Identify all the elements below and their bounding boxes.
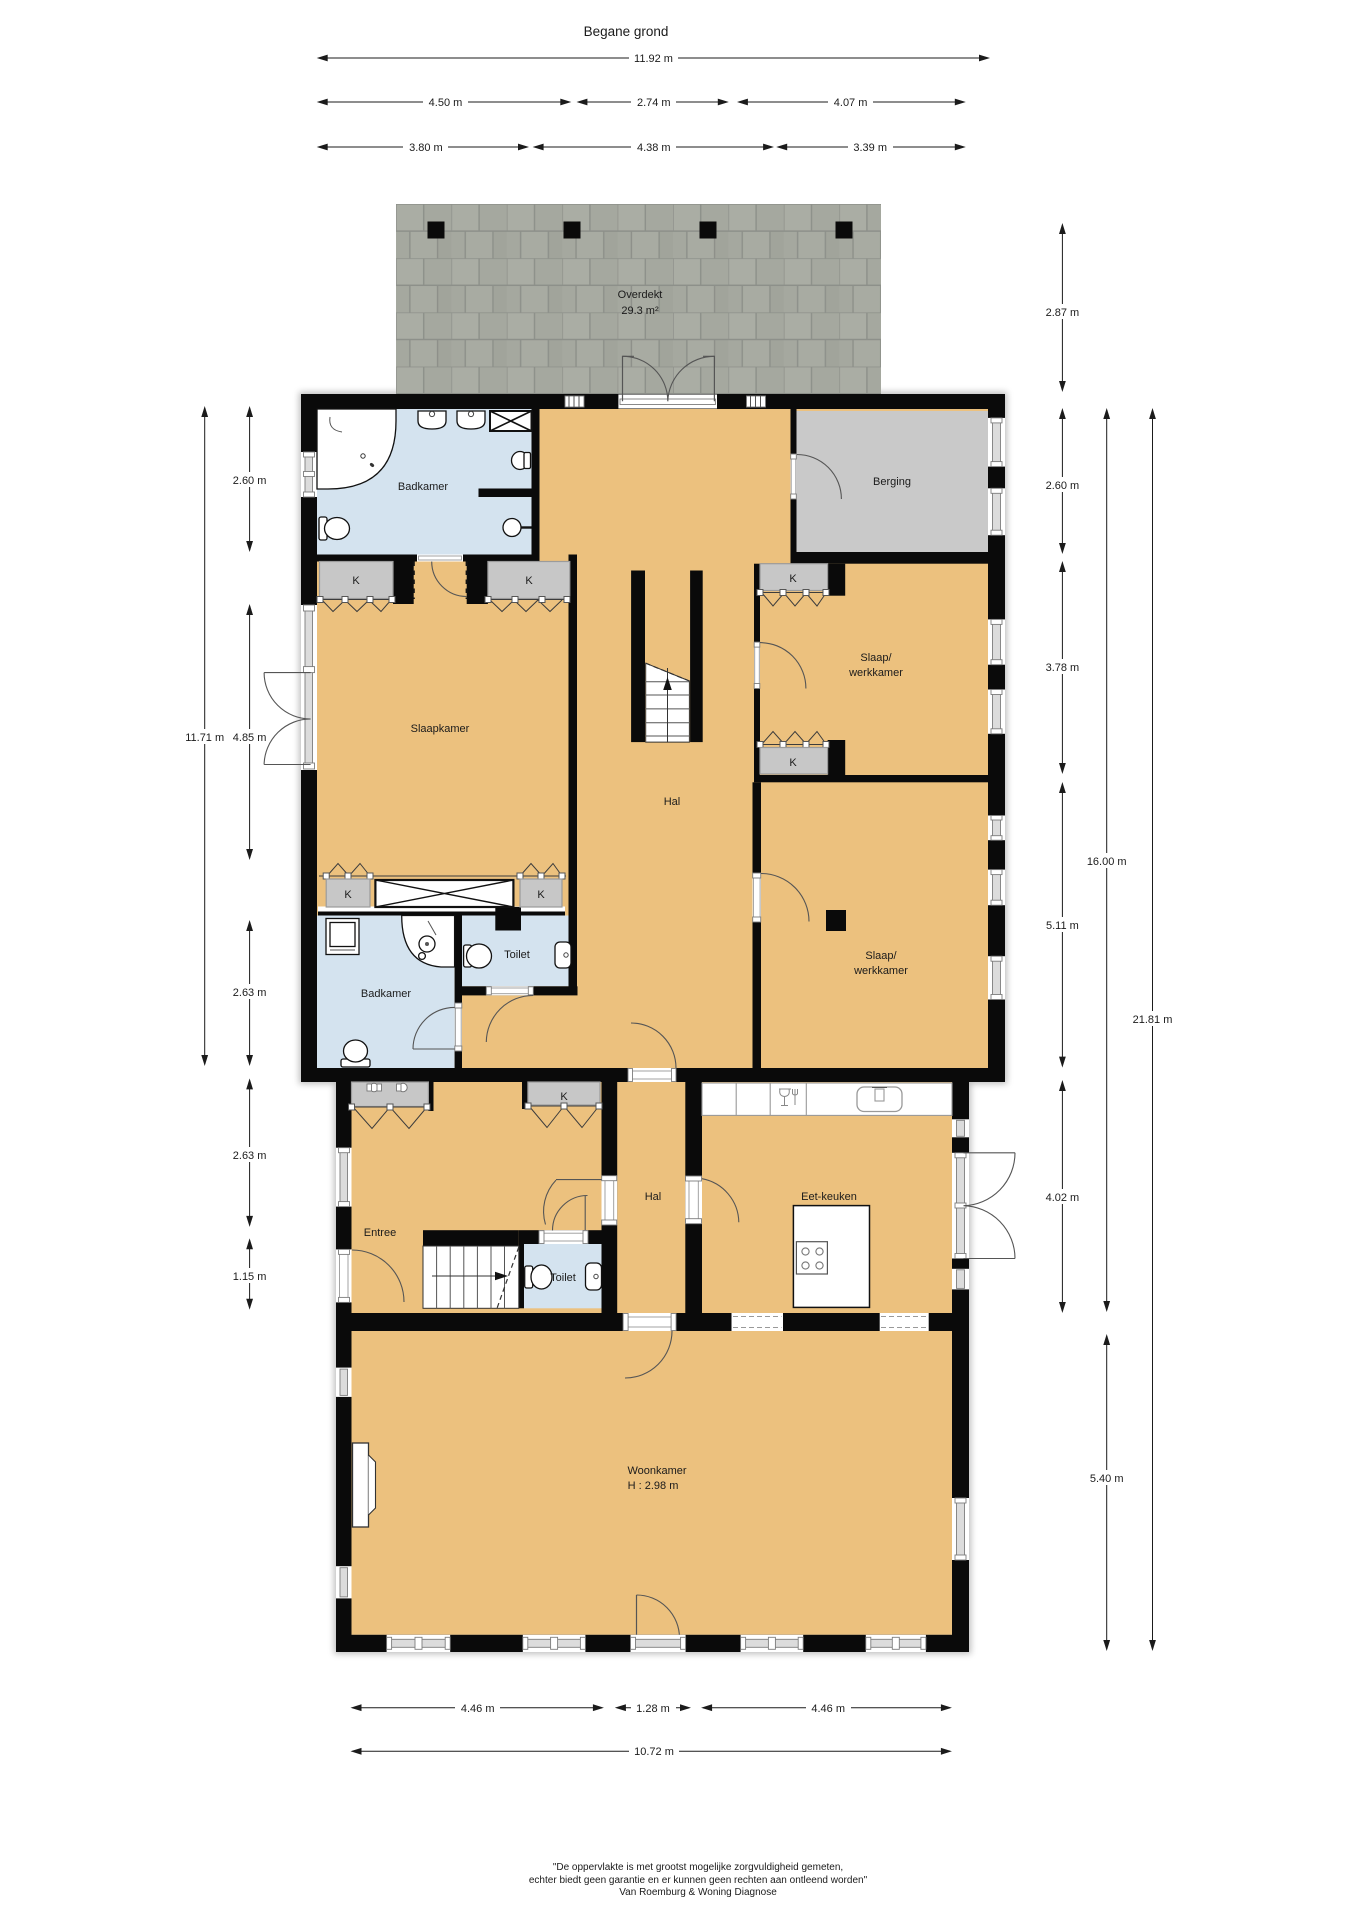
svg-text:11.71 m: 11.71 m (185, 732, 224, 744)
svg-text:Hal: Hal (645, 1191, 662, 1203)
svg-text:Badkamer: Badkamer (361, 988, 411, 1000)
svg-text:4.46 m: 4.46 m (811, 1703, 845, 1715)
svg-text:16.00 m: 16.00 m (1087, 856, 1127, 868)
svg-text:"De oppervlakte is met grootst: "De oppervlakte is met grootst mogelijke… (553, 1862, 843, 1873)
svg-text:2.60 m: 2.60 m (233, 475, 267, 487)
svg-text:Toilet: Toilet (550, 1272, 576, 1284)
svg-text:2.74 m: 2.74 m (637, 97, 671, 109)
svg-text:4.02 m: 4.02 m (1046, 1192, 1080, 1204)
svg-text:4.38 m: 4.38 m (637, 142, 671, 154)
svg-text:2.63 m: 2.63 m (233, 1150, 267, 1162)
svg-text:K: K (560, 1091, 568, 1103)
svg-text:Toilet: Toilet (504, 949, 530, 961)
svg-text:Entree: Entree (364, 1227, 396, 1239)
svg-text:2.87 m: 2.87 m (1046, 307, 1080, 319)
svg-text:K: K (789, 757, 797, 769)
svg-text:Slaapkamer: Slaapkamer (411, 723, 470, 735)
svg-text:4.85 m: 4.85 m (233, 732, 267, 744)
svg-text:Van Roemburg & Woning Diagnose: Van Roemburg & Woning Diagnose (619, 1887, 777, 1898)
svg-text:Begane grond: Begane grond (584, 24, 669, 39)
svg-text:29.3 m²: 29.3 m² (621, 305, 659, 317)
svg-text:5.40 m: 5.40 m (1090, 1473, 1124, 1485)
svg-text:3.78 m: 3.78 m (1046, 662, 1080, 674)
svg-text:K: K (537, 889, 545, 901)
svg-text:1.28 m: 1.28 m (636, 1703, 670, 1715)
svg-text:werkkamer: werkkamer (853, 965, 908, 977)
svg-text:2.63 m: 2.63 m (233, 987, 267, 999)
svg-text:werkkamer: werkkamer (848, 667, 903, 679)
svg-text:Eet-keuken: Eet-keuken (801, 1191, 857, 1203)
svg-text:K: K (352, 575, 360, 587)
svg-text:3.39 m: 3.39 m (853, 142, 887, 154)
svg-text:echter biedt geen garantie en: echter biedt geen garantie en er kunnen … (529, 1875, 868, 1886)
svg-text:4.07 m: 4.07 m (834, 97, 868, 109)
svg-text:K: K (525, 575, 533, 587)
svg-text:K: K (789, 573, 797, 585)
svg-text:H : 2.98 m: H : 2.98 m (628, 1480, 679, 1492)
svg-text:4.46 m: 4.46 m (461, 1703, 495, 1715)
svg-text:3.80 m: 3.80 m (409, 142, 443, 154)
svg-text:21.81 m: 21.81 m (1133, 1014, 1173, 1026)
svg-text:Slaap/: Slaap/ (860, 652, 892, 664)
svg-text:K: K (344, 889, 352, 901)
svg-text:1.15 m: 1.15 m (233, 1271, 267, 1283)
svg-text:Woonkamer: Woonkamer (627, 1465, 686, 1477)
svg-text:5.11 m: 5.11 m (1046, 920, 1079, 932)
svg-text:11.92 m: 11.92 m (634, 53, 673, 65)
svg-text:Hal: Hal (664, 796, 681, 808)
svg-text:Berging: Berging (873, 476, 911, 488)
svg-text:Overdekt: Overdekt (618, 289, 663, 301)
svg-text:Badkamer: Badkamer (398, 481, 448, 493)
svg-text:Slaap/: Slaap/ (865, 950, 897, 962)
svg-text:2.60 m: 2.60 m (1046, 480, 1080, 492)
svg-text:4.50 m: 4.50 m (429, 97, 463, 109)
svg-text:10.72 m: 10.72 m (634, 1746, 674, 1758)
